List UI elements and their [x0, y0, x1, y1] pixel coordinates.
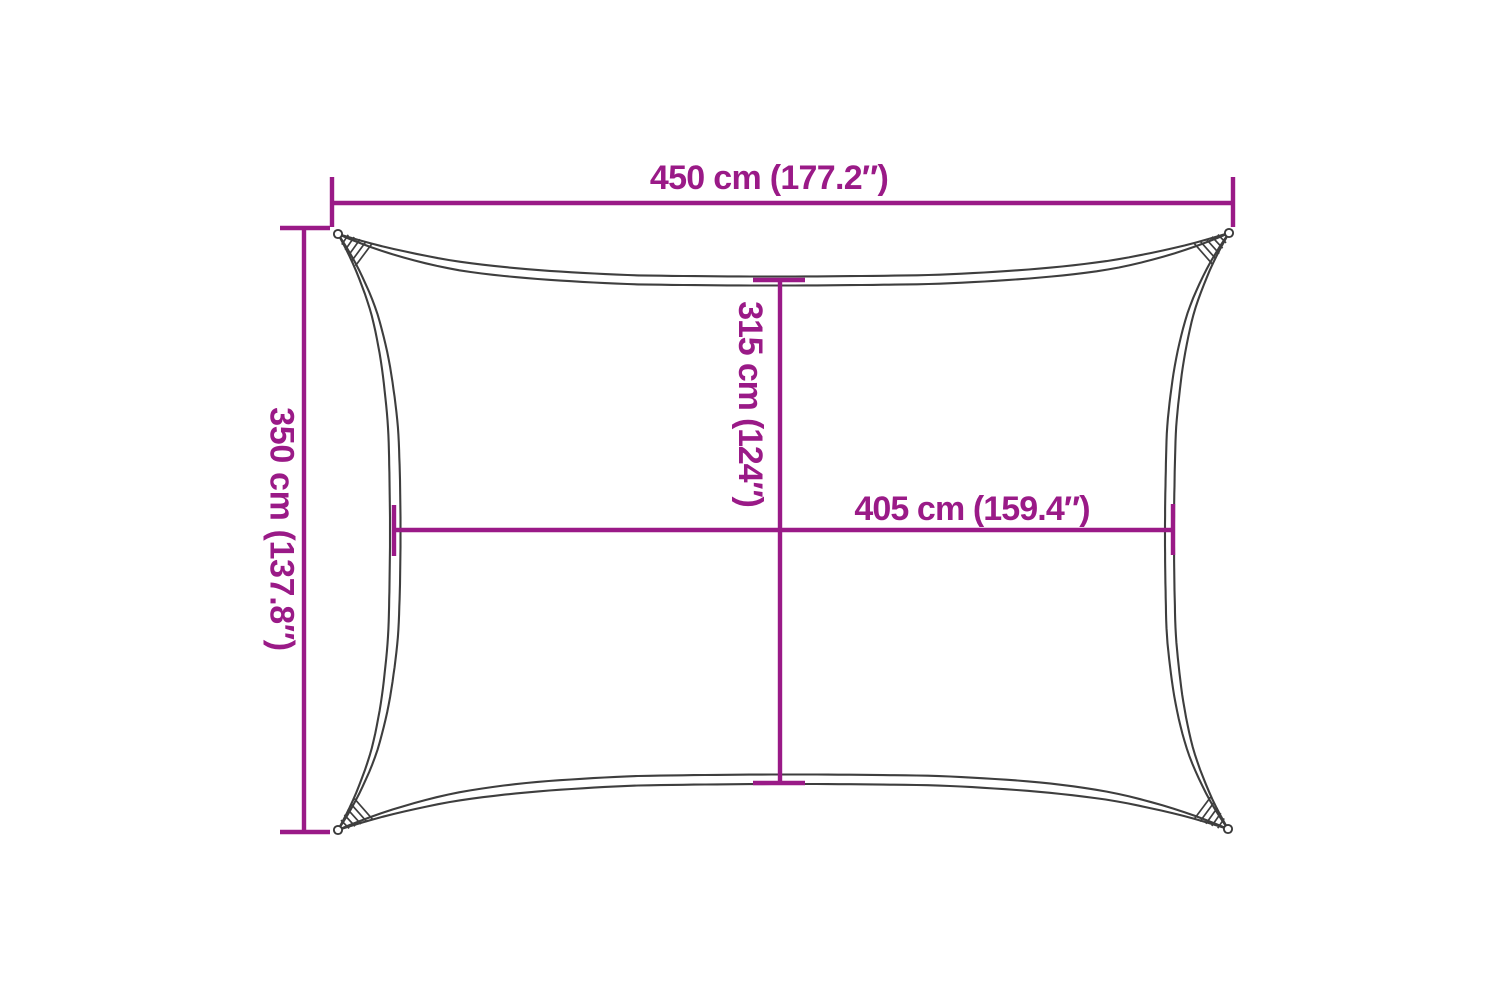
svg-text:350 cm (137.8″): 350 cm (137.8″) [263, 407, 301, 651]
svg-text:405 cm (159.4″): 405 cm (159.4″) [854, 490, 1089, 528]
svg-text:315 cm (124″): 315 cm (124″) [731, 301, 769, 506]
svg-text:450 cm (177.2″): 450 cm (177.2″) [650, 159, 888, 197]
